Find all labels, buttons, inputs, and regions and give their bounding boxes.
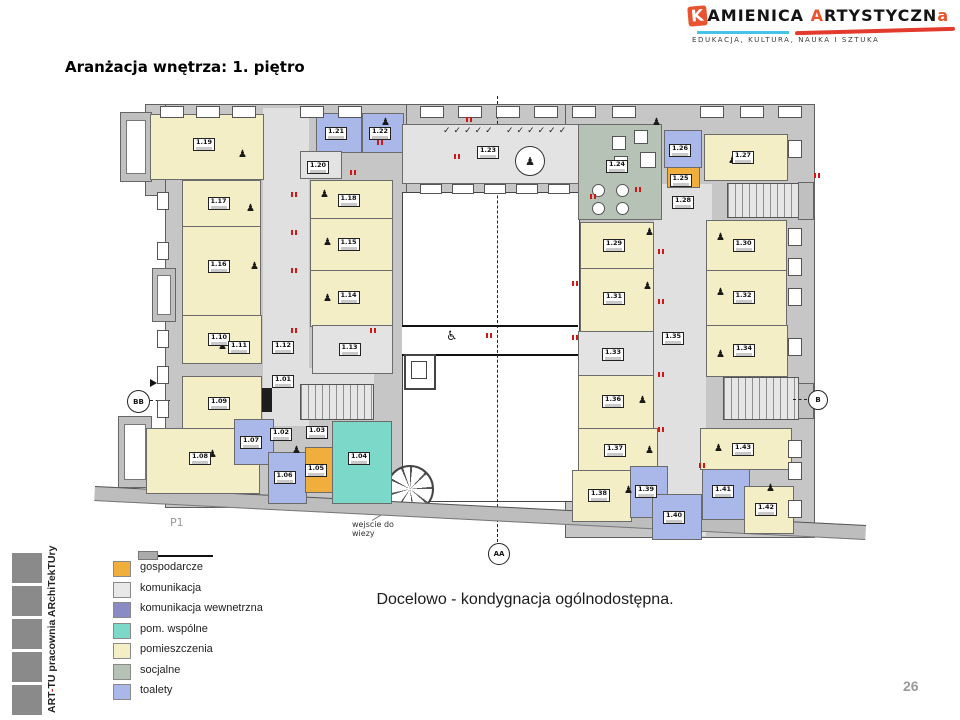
room-label-1.38: 1.38: [588, 489, 610, 502]
window: [196, 106, 220, 118]
room-label-1.31: 1.31: [603, 292, 625, 305]
room-label-1.36: 1.36: [602, 395, 624, 408]
person-icon: ♟: [323, 238, 332, 248]
window: [788, 288, 802, 306]
window: [612, 106, 636, 118]
radiator-icon: [572, 281, 580, 286]
room-label-1.14: 1.14: [338, 291, 360, 304]
window: [157, 330, 169, 348]
room-label-1.40: 1.40: [663, 511, 685, 524]
wheelchair-icon: ♿: [446, 330, 458, 343]
room-label-1.11: 1.11: [228, 341, 250, 354]
legend-label: komunikacja: [140, 582, 201, 594]
room-label-1.02: 1.02: [270, 428, 292, 441]
logo-tagline: EDUKACJA, KULTURA, NAUKA I SZTUKA: [692, 36, 879, 44]
room-label-1.43: 1.43: [732, 443, 754, 456]
window: [157, 366, 169, 384]
window: [516, 184, 538, 194]
person-icon: ♟: [323, 294, 332, 304]
legend-label: socjalne: [140, 664, 180, 676]
radiator-icon: [658, 427, 666, 432]
round-table: [592, 202, 605, 215]
sidebar-square: [12, 586, 42, 616]
room-label-1.28: 1.28: [672, 196, 694, 209]
room-label-1.15: 1.15: [338, 238, 360, 251]
bay-window-inner: [126, 120, 146, 174]
window: [484, 184, 506, 194]
page-number: 26: [903, 678, 919, 694]
studio-name: ART-TU pracownia ARchiTekTUry: [46, 548, 58, 713]
person-icon: ♟: [645, 446, 654, 456]
bay-window-inner: [157, 275, 171, 315]
window: [788, 462, 802, 480]
person-icon: ♟: [645, 228, 654, 238]
person-icon: ♟: [716, 350, 725, 360]
window: [300, 106, 324, 118]
window: [788, 258, 802, 276]
room-label-1.10: 1.10: [208, 333, 230, 346]
radiator-icon: [486, 333, 494, 338]
window: [232, 106, 256, 118]
room-label-1.30: 1.30: [733, 239, 755, 252]
window: [157, 242, 169, 260]
legend-swatch: [113, 561, 131, 577]
chair-icons: ✓✓✓✓✓✓: [506, 126, 569, 136]
room-label-1.23: 1.23: [477, 146, 499, 159]
radiator-icon: [658, 249, 666, 254]
window: [788, 500, 802, 518]
radiator-icon: [454, 154, 462, 159]
room-label-1.06: 1.06: [274, 471, 296, 484]
courtyard-bridge: [402, 325, 578, 356]
window: [788, 440, 802, 458]
table: [634, 130, 648, 144]
window: [452, 184, 474, 194]
room-label-1.17: 1.17: [208, 197, 230, 210]
radiator-icon: [291, 268, 299, 273]
person-icon: ♟: [766, 484, 775, 494]
legend-swatch: [113, 664, 131, 680]
person-icon: ♟: [292, 446, 301, 456]
person-icon: ♟: [638, 396, 647, 406]
room-label-1.16: 1.16: [208, 260, 230, 273]
room-label-1.24: 1.24: [606, 160, 628, 173]
radiator-icon: [658, 372, 666, 377]
window: [572, 106, 596, 118]
window: [740, 106, 764, 118]
stair-landing-bump: [798, 182, 814, 220]
round-table: [616, 202, 629, 215]
table: [640, 152, 656, 168]
room-label-1.19: 1.19: [193, 138, 215, 151]
main-staircase: [300, 384, 374, 420]
legend-swatch: [113, 643, 131, 659]
chair-icons: ✓✓✓✓✓: [443, 126, 496, 136]
room-label-1.42: 1.42: [755, 503, 777, 516]
person-icon: ♟: [238, 150, 247, 160]
legend-label: toalety: [140, 684, 172, 696]
window: [534, 106, 558, 118]
occupancy-circle: ♟: [515, 146, 545, 176]
radiator-icon: [291, 328, 299, 333]
floor-label: P1: [170, 516, 184, 529]
window: [157, 192, 169, 210]
logo: KAMIENICA ARTYSTYCZNa: [688, 6, 956, 26]
legend-label: pom. wspólne: [140, 623, 208, 635]
legend-swatch: [113, 582, 131, 598]
room-label-1.09: 1.09: [208, 397, 230, 410]
person-icon: ♟: [320, 190, 329, 200]
radiator-icon: [572, 335, 580, 340]
room-label-1.39: 1.39: [635, 485, 657, 498]
window: [420, 106, 444, 118]
radiator-icon: [291, 230, 299, 235]
sidebar-square: [12, 685, 42, 715]
room-label-1.13: 1.13: [339, 343, 361, 356]
legend-label: pomieszczenia: [140, 643, 213, 655]
northeast-staircase: [727, 183, 803, 218]
room-label-1.25: 1.25: [670, 174, 692, 187]
legend-label: komunikacja wewnetrzna: [140, 602, 263, 614]
window: [160, 106, 184, 118]
page-title: Aranżacja wnętrza: 1. piętro: [65, 58, 305, 76]
radiator-icon: [350, 170, 358, 175]
elevator-shaft: [261, 388, 272, 412]
room-label-1.05: 1.05: [305, 464, 327, 477]
room-label-1.27: 1.27: [732, 151, 754, 164]
person-icon: ♟: [250, 262, 259, 272]
window: [788, 140, 802, 158]
room-label-1.33: 1.33: [602, 348, 624, 361]
room-label-1.07: 1.07: [240, 436, 262, 449]
radiator-icon: [635, 187, 643, 192]
legend-label: gospodarcze: [140, 561, 203, 573]
person-icon: ♟: [652, 118, 661, 128]
radiator-icon: [377, 140, 385, 145]
room-label-1.20: 1.20: [307, 161, 329, 174]
radiator-icon: [814, 173, 822, 178]
room-label-1.03: 1.03: [306, 426, 328, 439]
radiator-icon: [466, 117, 474, 122]
person-icon: ♟: [246, 204, 255, 214]
radiator-icon: [370, 328, 378, 333]
table: [612, 136, 626, 150]
window: [548, 184, 570, 194]
window: [157, 400, 169, 418]
slide: { "slide": { "title": "Aranżacja wnętrza…: [0, 0, 960, 720]
legend: gospodarczekomunikacjakomunikacja wewnet…: [113, 560, 313, 710]
window: [788, 338, 802, 356]
radiator-icon: [291, 192, 299, 197]
room-label-1.37: 1.37: [604, 444, 626, 457]
scale-bar-line: [158, 555, 213, 557]
room-label-1.32: 1.32: [733, 291, 755, 304]
room-label-1.12: 1.12: [272, 341, 294, 354]
axis-flag: [150, 379, 157, 387]
window: [338, 106, 362, 118]
room-label-1.35: 1.35: [662, 332, 684, 345]
tower-note: wejscie do wiezy: [352, 520, 407, 538]
radiator-icon: [658, 299, 666, 304]
logo-k-badge: K: [687, 5, 708, 27]
window: [788, 228, 802, 246]
person-icon: ♟: [525, 155, 535, 168]
legend-swatch: [113, 623, 131, 639]
courtyard-elevator-car: [411, 361, 427, 379]
person-icon: ♟: [716, 233, 725, 243]
section-marker-bb: BB: [127, 390, 150, 413]
caption: Docelowo - kondygnacja ogólnodostępna.: [335, 591, 715, 609]
window: [778, 106, 802, 118]
window: [420, 184, 442, 194]
radiator-icon: [590, 194, 598, 199]
logo-title: KAMIENICA ARTYSTYCZNa: [688, 6, 956, 26]
room-label-1.04: 1.04: [348, 452, 370, 465]
room-label-1.22: 1.22: [369, 127, 391, 140]
person-icon: ♟: [716, 288, 725, 298]
round-table: [616, 184, 629, 197]
room-label-1.18: 1.18: [338, 194, 360, 207]
sidebar-square: [12, 619, 42, 649]
person-icon: ♟: [643, 282, 652, 292]
sidebar-square: [12, 553, 42, 583]
scale-bar: [138, 551, 158, 560]
window: [700, 106, 724, 118]
person-icon: ♟: [714, 444, 723, 454]
room-label-1.29: 1.29: [603, 239, 625, 252]
room-label-1.41: 1.41: [712, 485, 734, 498]
axis-dash: [793, 399, 807, 400]
legend-swatch: [113, 684, 131, 700]
room-label-1.21: 1.21: [325, 127, 347, 140]
section-marker-b: B: [808, 390, 828, 410]
room-label-1.26: 1.26: [669, 144, 691, 157]
sidebar-square: [12, 652, 42, 682]
bay-window-inner: [124, 424, 146, 480]
room-label-1.08: 1.08: [189, 452, 211, 465]
window: [496, 106, 520, 118]
logo-cyan-underline: [697, 31, 789, 34]
room-label-1.34: 1.34: [733, 344, 755, 357]
person-icon: ♟: [624, 486, 633, 496]
southeast-staircase: [723, 377, 799, 420]
radiator-icon: [699, 463, 707, 468]
section-marker-aa: AA: [488, 543, 510, 565]
legend-swatch: [113, 602, 131, 618]
room-label-1.01: 1.01: [272, 375, 294, 388]
